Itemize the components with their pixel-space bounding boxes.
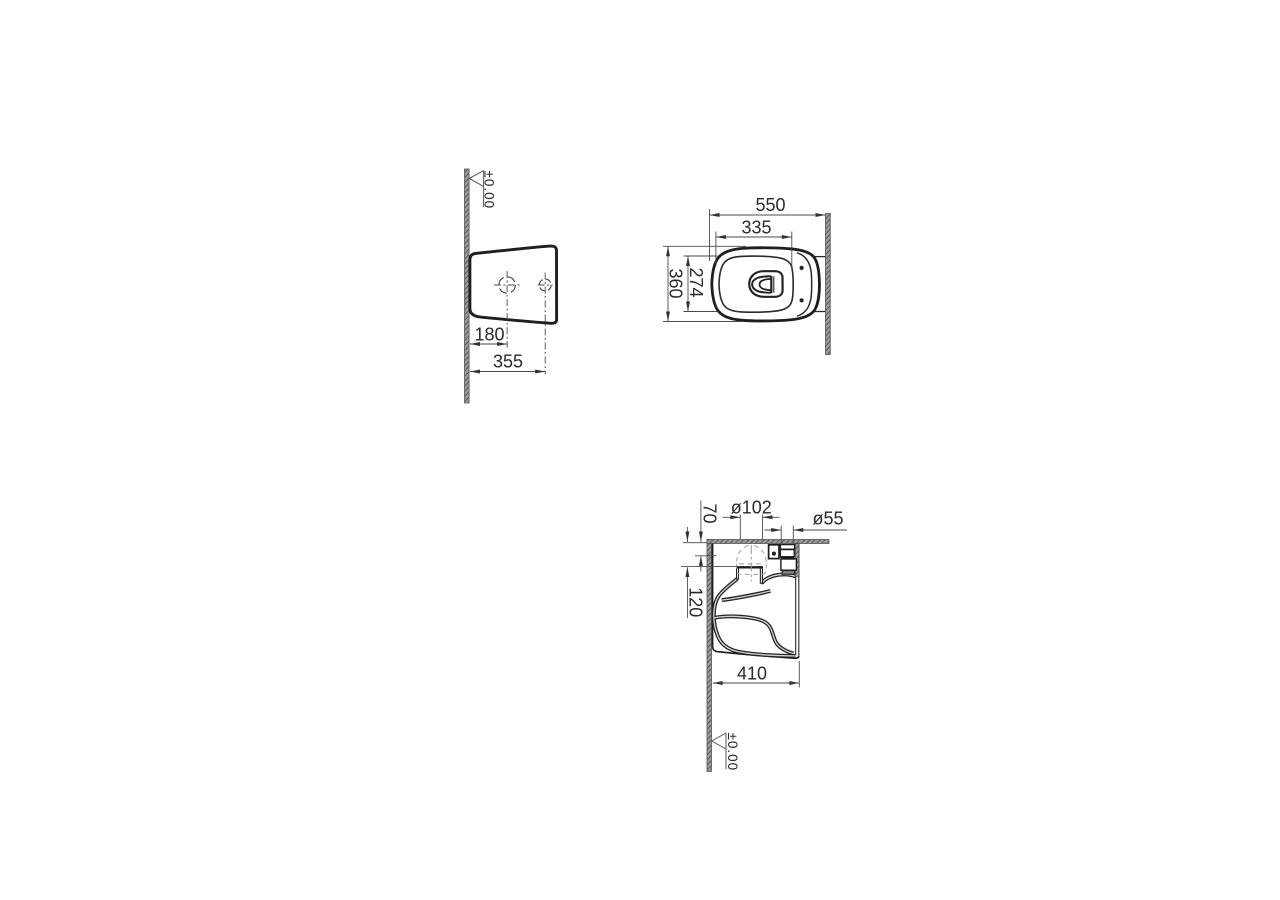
svg-text:335: 335 — [741, 217, 771, 237]
svg-text:410: 410 — [737, 664, 767, 684]
svg-text:ø55: ø55 — [812, 509, 843, 529]
svg-text:70: 70 — [700, 503, 720, 523]
svg-text:550: 550 — [755, 195, 785, 215]
svg-text:±0.00: ±0.00 — [481, 171, 496, 210]
svg-text:±0.00: ±0.00 — [725, 733, 740, 772]
svg-text:ø102: ø102 — [731, 498, 772, 518]
svg-text:355: 355 — [493, 352, 523, 372]
svg-text:120: 120 — [686, 587, 706, 617]
svg-text:180: 180 — [474, 325, 504, 345]
svg-text:360: 360 — [666, 268, 686, 298]
svg-text:274: 274 — [686, 267, 706, 297]
